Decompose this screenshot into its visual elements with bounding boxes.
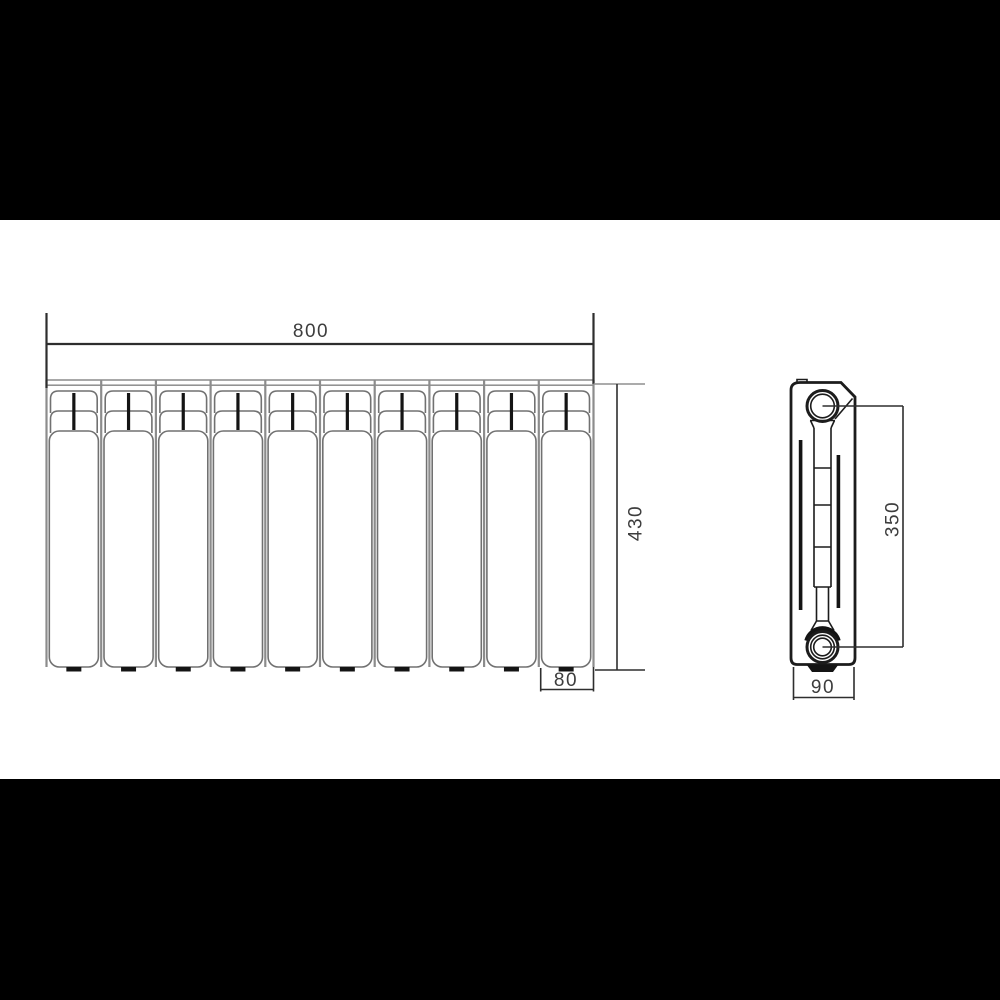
dimension-label-overall-width: 800 — [293, 321, 329, 342]
section-foot — [176, 667, 191, 672]
radiator-section — [432, 431, 481, 667]
section-foot — [121, 667, 136, 672]
radiator-section — [213, 431, 262, 667]
section-foot — [66, 667, 81, 672]
section-foot — [449, 667, 464, 672]
radiator-front-view — [47, 380, 594, 672]
radiator-section — [323, 431, 372, 667]
section-foot — [230, 667, 245, 672]
section-foot — [285, 667, 300, 672]
screenshot-root: 800 430 80 — [0, 0, 1000, 1000]
radiator-section — [49, 431, 98, 667]
section-foot — [395, 667, 410, 672]
dimension-label-depth: 90 — [811, 677, 835, 698]
side-fin-bar-right — [837, 455, 841, 608]
dimension-label-section-width: 80 — [554, 670, 578, 691]
section-foot — [504, 667, 519, 672]
side-foot — [807, 665, 839, 673]
radiator-section — [159, 431, 208, 667]
radiator-section — [487, 431, 536, 667]
radiator-section — [378, 431, 427, 667]
radiator-section — [104, 431, 153, 667]
dimension-label-port-axis-height: 350 — [883, 501, 904, 537]
dimension-label-overall-height: 430 — [626, 505, 647, 541]
radiator-side-view — [791, 380, 855, 673]
section-foot — [340, 667, 355, 672]
radiator-section — [542, 431, 591, 667]
technical-drawing: 800 430 80 — [0, 0, 1000, 1000]
side-fin-bar-left — [799, 440, 803, 610]
radiator-section — [268, 431, 317, 667]
